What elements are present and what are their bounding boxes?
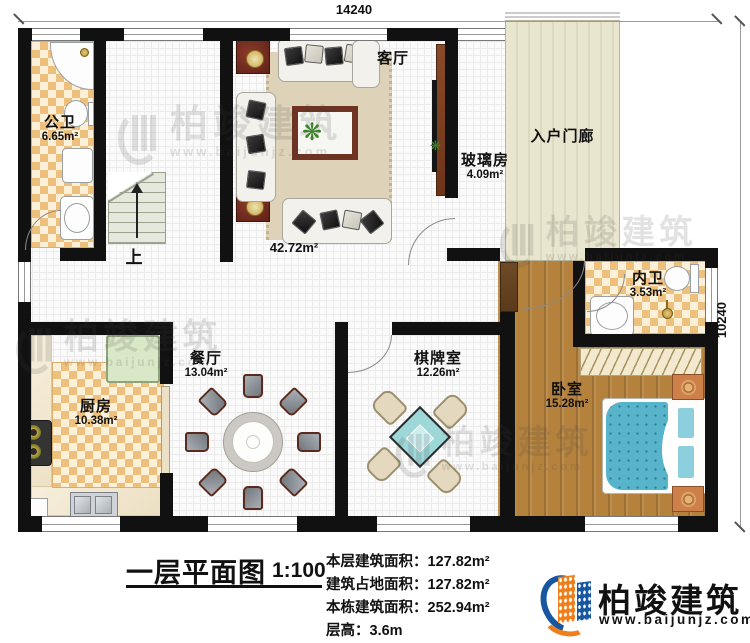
inner-toilet-tank: [690, 264, 699, 293]
stat-row: 建筑占地面积：127.82m²: [326, 574, 490, 597]
wall-segment: [18, 28, 31, 262]
stat-row: 本栋建筑面积：252.94m²: [326, 597, 490, 620]
nightstand: [672, 486, 704, 512]
porch-step-line: [505, 12, 620, 14]
sofa-pillow: [324, 46, 344, 66]
dimension-line-top: [18, 21, 718, 22]
room-label-public-bath: 公卫 6.65m²: [20, 114, 100, 144]
room-label-porch: 入户门廊: [505, 128, 620, 145]
stairs-arrow: [136, 192, 138, 238]
sink-basin: [95, 496, 112, 514]
plant-icon: ❋: [302, 118, 322, 147]
small-plant-icon: ❋: [430, 138, 441, 154]
logo-building-icon: [558, 575, 575, 623]
wall-segment: [60, 248, 106, 261]
stat-row: 本层建筑面积：127.82m²: [326, 551, 490, 574]
floor-plan: ❋ ❋: [0, 0, 750, 643]
plan-scale: 1:100: [272, 559, 326, 583]
washer-icon: [62, 148, 93, 183]
dimension-top-label: 14240: [330, 2, 378, 17]
wall-segment: [120, 516, 208, 532]
wardrobe: [580, 348, 702, 376]
room-label-kitchen: 厨房 10.38m²: [55, 398, 137, 428]
sofa-pillow: [291, 209, 316, 234]
bed-pillow: [676, 444, 696, 480]
porch-step-line: [505, 16, 620, 18]
wall-segment: [220, 28, 233, 262]
window: [377, 516, 470, 532]
window: [42, 516, 120, 532]
bed-pillow: [676, 406, 696, 440]
room-label-glass: 玻璃房 4.09m²: [444, 152, 526, 182]
dining-chair: [185, 432, 209, 452]
company-logo: 柏竣建筑 www.baijunjz.com: [542, 572, 742, 634]
wall-segment: [18, 302, 31, 532]
room-label-inner-bath: 内卫 3.53m²: [607, 270, 689, 300]
kitchen-sliding-door: [161, 386, 170, 474]
wall-segment: [705, 322, 718, 532]
sofa-pillow: [359, 209, 384, 234]
window: [290, 28, 387, 41]
logo-building-icon: [577, 581, 591, 621]
dining-table-center: [246, 435, 260, 449]
side-table: [236, 40, 270, 74]
fridge-icon: [106, 335, 160, 383]
room-label-dining: 餐厅 13.04m²: [165, 350, 247, 380]
window: [18, 262, 31, 302]
window: [32, 28, 80, 41]
bed-blanket: [606, 402, 668, 490]
wall-segment: [335, 322, 348, 532]
shoe-cabinet: [500, 262, 518, 312]
sofa-pillow: [245, 99, 266, 120]
game-table-top: [406, 424, 434, 452]
company-url: www.baijunjz.com: [599, 612, 750, 627]
wall-segment: [500, 312, 515, 532]
room-label-living: 客厅: [357, 50, 429, 67]
sofa-bottom: [282, 198, 392, 244]
nightstand: [672, 374, 704, 400]
living-area-label: 42.72m²: [252, 240, 336, 255]
sofa-left: [236, 92, 276, 202]
wall-segment: [18, 516, 42, 532]
tv-icon: [432, 80, 437, 172]
wall-segment: [573, 334, 718, 347]
sofa-pillow: [284, 46, 304, 66]
sofa-pillow: [304, 44, 324, 64]
shower-head-icon: [80, 48, 89, 57]
dimension-right-label: 10240: [714, 302, 729, 338]
dimension-tick: [14, 13, 25, 24]
wall-segment: [203, 28, 290, 41]
stairs-up-label: 上: [119, 248, 149, 268]
sofa-pillow: [319, 209, 340, 230]
room-label-game: 棋牌室 12.26m²: [397, 350, 479, 380]
window: [458, 28, 505, 41]
dining-table: [223, 412, 283, 472]
lamp-icon: [246, 50, 264, 68]
window: [585, 516, 678, 532]
stat-row: 层高：3.6m: [326, 620, 490, 643]
title-underline: [126, 585, 322, 588]
room-label-bedroom: 卧室 15.28m²: [525, 381, 609, 411]
sofa-pillow: [246, 134, 267, 155]
dimension-tick: [712, 13, 723, 24]
door-stop-icon: [662, 308, 673, 319]
wall-segment: [392, 322, 500, 335]
wall-segment: [470, 516, 585, 532]
wall-segment: [31, 322, 160, 335]
wall-segment: [160, 473, 173, 516]
dining-chair: [297, 432, 321, 452]
dining-chair: [243, 486, 263, 510]
window: [208, 516, 297, 532]
stairs-arrow-head: [131, 183, 143, 193]
window: [124, 28, 203, 41]
dimension-line-right: [740, 22, 741, 528]
sink-basin: [74, 496, 91, 514]
sofa-pillow: [246, 170, 266, 190]
building-stats: 本层建筑面积：127.82m² 建筑占地面积：127.82m² 本栋建筑面积：2…: [326, 551, 490, 643]
floor-plan-page: ❋ ❋: [0, 0, 750, 643]
bath-sink-icon: [64, 203, 90, 233]
wall-segment: [585, 248, 718, 261]
